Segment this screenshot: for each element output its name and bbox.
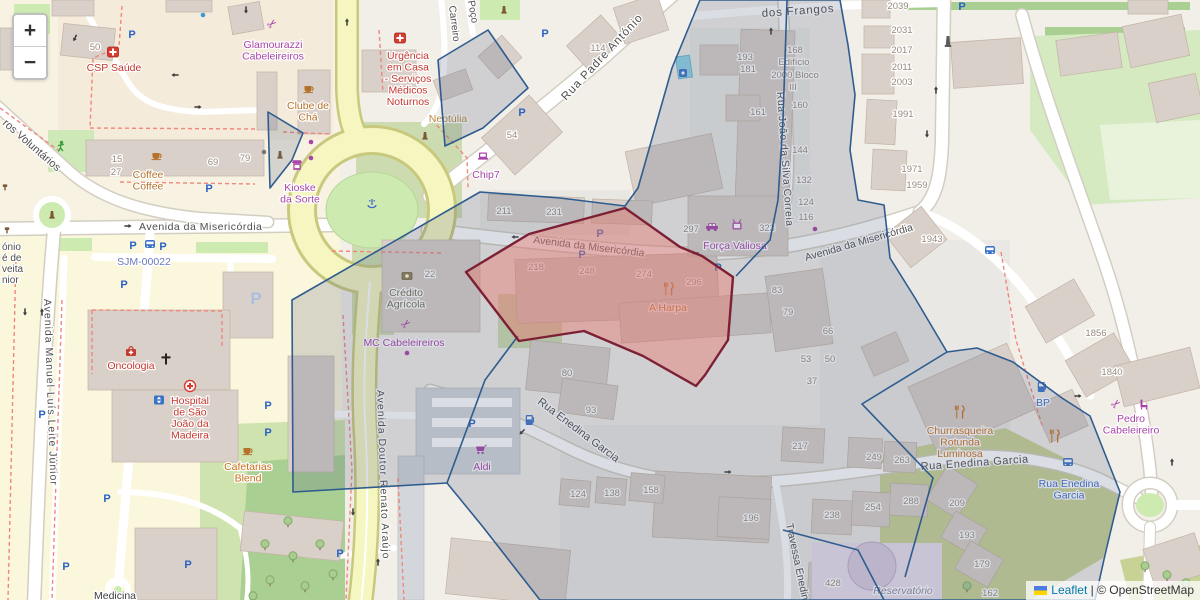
street-label: Avenida da Misericórdia <box>139 221 262 233</box>
map-tree-icon <box>249 592 257 600</box>
map-dot-icon <box>309 156 314 161</box>
poi-label: CSP Saúde <box>87 62 142 74</box>
poi-label: de São <box>173 407 206 419</box>
poi-label: Médicos <box>388 85 427 97</box>
map-parking-icon: P <box>264 400 271 412</box>
poi-label: Glamourazzi <box>244 39 303 51</box>
svg-text:P: P <box>336 548 343 560</box>
map-parking-icon: P <box>62 561 69 573</box>
poi-kiosk-icon <box>292 160 302 170</box>
map-parking-icon: P <box>518 107 525 119</box>
svg-text:P: P <box>129 240 136 252</box>
attribution-bar: Leaflet | © OpenStreetMap <box>1026 581 1200 600</box>
svg-text:P: P <box>128 29 135 41</box>
map-dot-icon <box>201 13 206 18</box>
house-number: 114 <box>590 43 605 54</box>
svg-text:P: P <box>541 28 548 40</box>
svg-text:P: P <box>159 241 166 253</box>
street-label: ónio <box>2 242 21 253</box>
svg-text:P: P <box>184 559 191 571</box>
poi-label: Clube de <box>287 100 329 112</box>
svg-text:P: P <box>264 427 271 439</box>
poi-label: Oncologia <box>107 360 154 372</box>
svg-text:P: P <box>205 183 212 195</box>
house-number: 79 <box>240 153 251 164</box>
poi-label: da Sorte <box>280 194 320 206</box>
leaflet-link[interactable]: Leaflet <box>1051 583 1087 597</box>
poi-label: Coffee <box>133 181 164 193</box>
house-number: 1856 <box>1085 328 1106 339</box>
svg-text:P: P <box>62 561 69 573</box>
street-label: veita <box>2 264 24 275</box>
poi-label: SJM-00022 <box>117 256 171 268</box>
map-parking-icon: P <box>336 548 343 560</box>
svg-text:P: P <box>264 400 271 412</box>
map-bus-icon <box>985 246 995 254</box>
poi-label: Cabeleireiros <box>242 51 304 63</box>
zoom-in-button[interactable]: + <box>14 15 46 47</box>
poi-label: Pedro <box>1117 413 1145 425</box>
house-number: 1971 <box>901 164 922 175</box>
map-parking-icon: P <box>541 28 548 40</box>
poi-label: Medicina <box>94 590 136 600</box>
base-map: ros VoluntáriosAvenida da MisericórdiaAv… <box>0 0 1200 600</box>
svg-text:P: P <box>103 493 110 505</box>
zoom-out-button[interactable]: − <box>14 47 46 78</box>
svg-text:P: P <box>250 289 261 308</box>
house-number: 2031 <box>891 25 912 36</box>
poi-label: Kioske <box>284 182 316 194</box>
map-dot-icon <box>309 140 314 145</box>
poi-label: Noturnos <box>387 96 430 108</box>
poi-label: - Serviços <box>385 73 432 85</box>
house-number: 2003 <box>891 77 912 88</box>
map-parking-icon: P <box>958 1 965 13</box>
poi-label: em Casa <box>387 62 429 74</box>
poi-label: Chá <box>298 112 317 124</box>
house-number: 50 <box>90 42 101 53</box>
poi-label: Coffee <box>133 169 164 181</box>
map-canvas[interactable]: ros VoluntáriosAvenida da MisericórdiaAv… <box>0 0 1200 600</box>
map-arrow-icon <box>925 130 929 137</box>
map-arrow-icon <box>1170 458 1174 465</box>
house-number: 2017 <box>891 45 912 56</box>
map-parking-icon: P <box>128 29 135 41</box>
map-parking-icon: P <box>120 279 127 291</box>
house-number: 1840 <box>1101 367 1122 378</box>
map-parking-icon: P <box>184 559 191 571</box>
poi-label: Cafetarias <box>224 461 272 473</box>
house-number: 27 <box>111 167 122 178</box>
house-number: 54 <box>507 130 518 141</box>
poi-firstaid-icon <box>108 47 119 57</box>
poi-elevator-icon <box>154 396 164 405</box>
map-parking-icon: P <box>129 240 136 252</box>
map-parkinglot-icon: P <box>250 289 261 308</box>
poi-hospital-icon <box>185 381 196 392</box>
poi-laptop-icon <box>478 153 488 160</box>
map-parking-icon: P <box>264 427 271 439</box>
house-number: 69 <box>208 157 219 168</box>
poi-label: Hospital <box>171 395 209 407</box>
svg-text:P: P <box>120 279 127 291</box>
street-label: é de <box>2 253 22 264</box>
poi-label: Cabeleireiro <box>1103 425 1160 437</box>
house-number: 1959 <box>906 180 927 191</box>
map-bus-icon <box>145 240 155 248</box>
house-number: 2011 <box>892 62 912 73</box>
street-label: Carreiro <box>446 5 461 43</box>
poi-label: Urgência <box>387 50 429 62</box>
map-parking-icon: P <box>159 241 166 253</box>
ukraine-flag-icon <box>1034 586 1047 595</box>
osm-copyright: © OpenStreetMap <box>1097 583 1194 597</box>
street-label: nior <box>2 275 19 286</box>
poi-label: Blend <box>235 473 262 485</box>
svg-text:P: P <box>518 107 525 119</box>
house-number: 1991 <box>892 109 913 120</box>
map-parking-icon: P <box>205 183 212 195</box>
map-dot-icon <box>262 150 267 155</box>
map-parking-icon: P <box>103 493 110 505</box>
map-parking-icon: P <box>38 409 45 421</box>
house-number: 15 <box>112 154 123 165</box>
svg-text:P: P <box>38 409 45 421</box>
zoom-control: + − <box>12 13 48 80</box>
attribution-separator: | <box>1091 583 1094 597</box>
poi-firstaid-icon <box>395 33 406 43</box>
poi-label: Madeira <box>171 430 209 442</box>
svg-text:P: P <box>958 1 965 13</box>
poi-label: Chip7 <box>472 169 500 181</box>
poi-label: João da <box>171 418 209 430</box>
house-number: 1943 <box>921 234 942 245</box>
house-number: 2039 <box>887 1 908 12</box>
street-label: Poço <box>465 0 480 24</box>
